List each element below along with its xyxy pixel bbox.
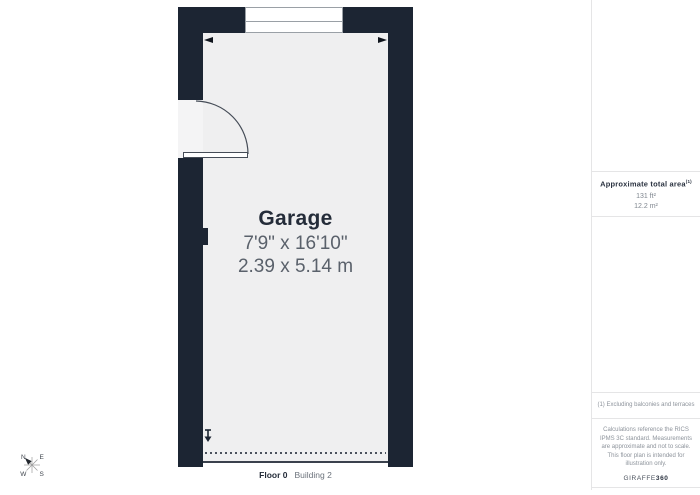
dimension-arrow-right-icon xyxy=(378,37,387,43)
compass-icon: N E W S xyxy=(10,441,54,485)
info-sidebar: Approximate total area(1) 131 ft² 12.2 m… xyxy=(591,0,700,490)
room-dimensions-metric: 2.39 x 5.14 m xyxy=(203,255,388,278)
logo-text-bold: 360 xyxy=(656,475,669,482)
total-area-title-text: Approximate total area xyxy=(600,180,686,189)
total-area-title-superscript: (1) xyxy=(686,179,692,184)
total-area-metric: 12.2 m² xyxy=(592,202,700,212)
footnote: (1) Excluding balconies and terraces xyxy=(592,392,700,419)
wall-left-lower xyxy=(178,158,203,467)
garage-opening-dashed-line xyxy=(205,452,386,454)
plan-footer: Floor 0Building 2 xyxy=(178,470,413,480)
compass-n-label: N xyxy=(21,454,26,461)
giraffe360-logo: GIRAFFE360 xyxy=(599,475,693,484)
compass-w-label: W xyxy=(20,471,27,478)
compass-s-label: S xyxy=(40,471,45,478)
building-label: Building 2 xyxy=(295,470,332,480)
window-midline xyxy=(246,21,342,22)
position-marker-icon xyxy=(203,429,213,443)
wall-left-upper xyxy=(178,7,203,100)
floorplan-page: Garage 7'9" x 16'10" 2.39 x 5.14 m Floor… xyxy=(0,0,700,495)
plan-bottom-edge xyxy=(203,461,388,463)
dimension-arrow-left-icon xyxy=(204,37,213,43)
logo-text-regular: GIRAFFE xyxy=(623,475,655,482)
room-name: Garage xyxy=(203,206,388,232)
floorplan-canvas: Garage 7'9" x 16'10" 2.39 x 5.14 m xyxy=(178,7,413,467)
room-dimensions-imperial: 7'9" x 16'10" xyxy=(203,232,388,255)
room-label: Garage 7'9" x 16'10" 2.39 x 5.14 m xyxy=(203,206,388,278)
floor-label: Floor 0 xyxy=(259,470,287,480)
compass-e-label: E xyxy=(40,454,45,461)
door-leaf xyxy=(183,152,248,158)
wall-right xyxy=(388,7,413,467)
disclaimer-section: Calculations reference the RICS IPMS 3C … xyxy=(592,419,700,488)
door-opening xyxy=(178,100,203,158)
total-area-title: Approximate total area(1) xyxy=(592,179,700,189)
window-symbol xyxy=(245,7,343,33)
disclaimer-text: Calculations reference the RICS IPMS 3C … xyxy=(599,426,693,469)
total-area-imperial: 131 ft² xyxy=(592,192,700,202)
total-area-section: Approximate total area(1) 131 ft² 12.2 m… xyxy=(592,171,700,217)
